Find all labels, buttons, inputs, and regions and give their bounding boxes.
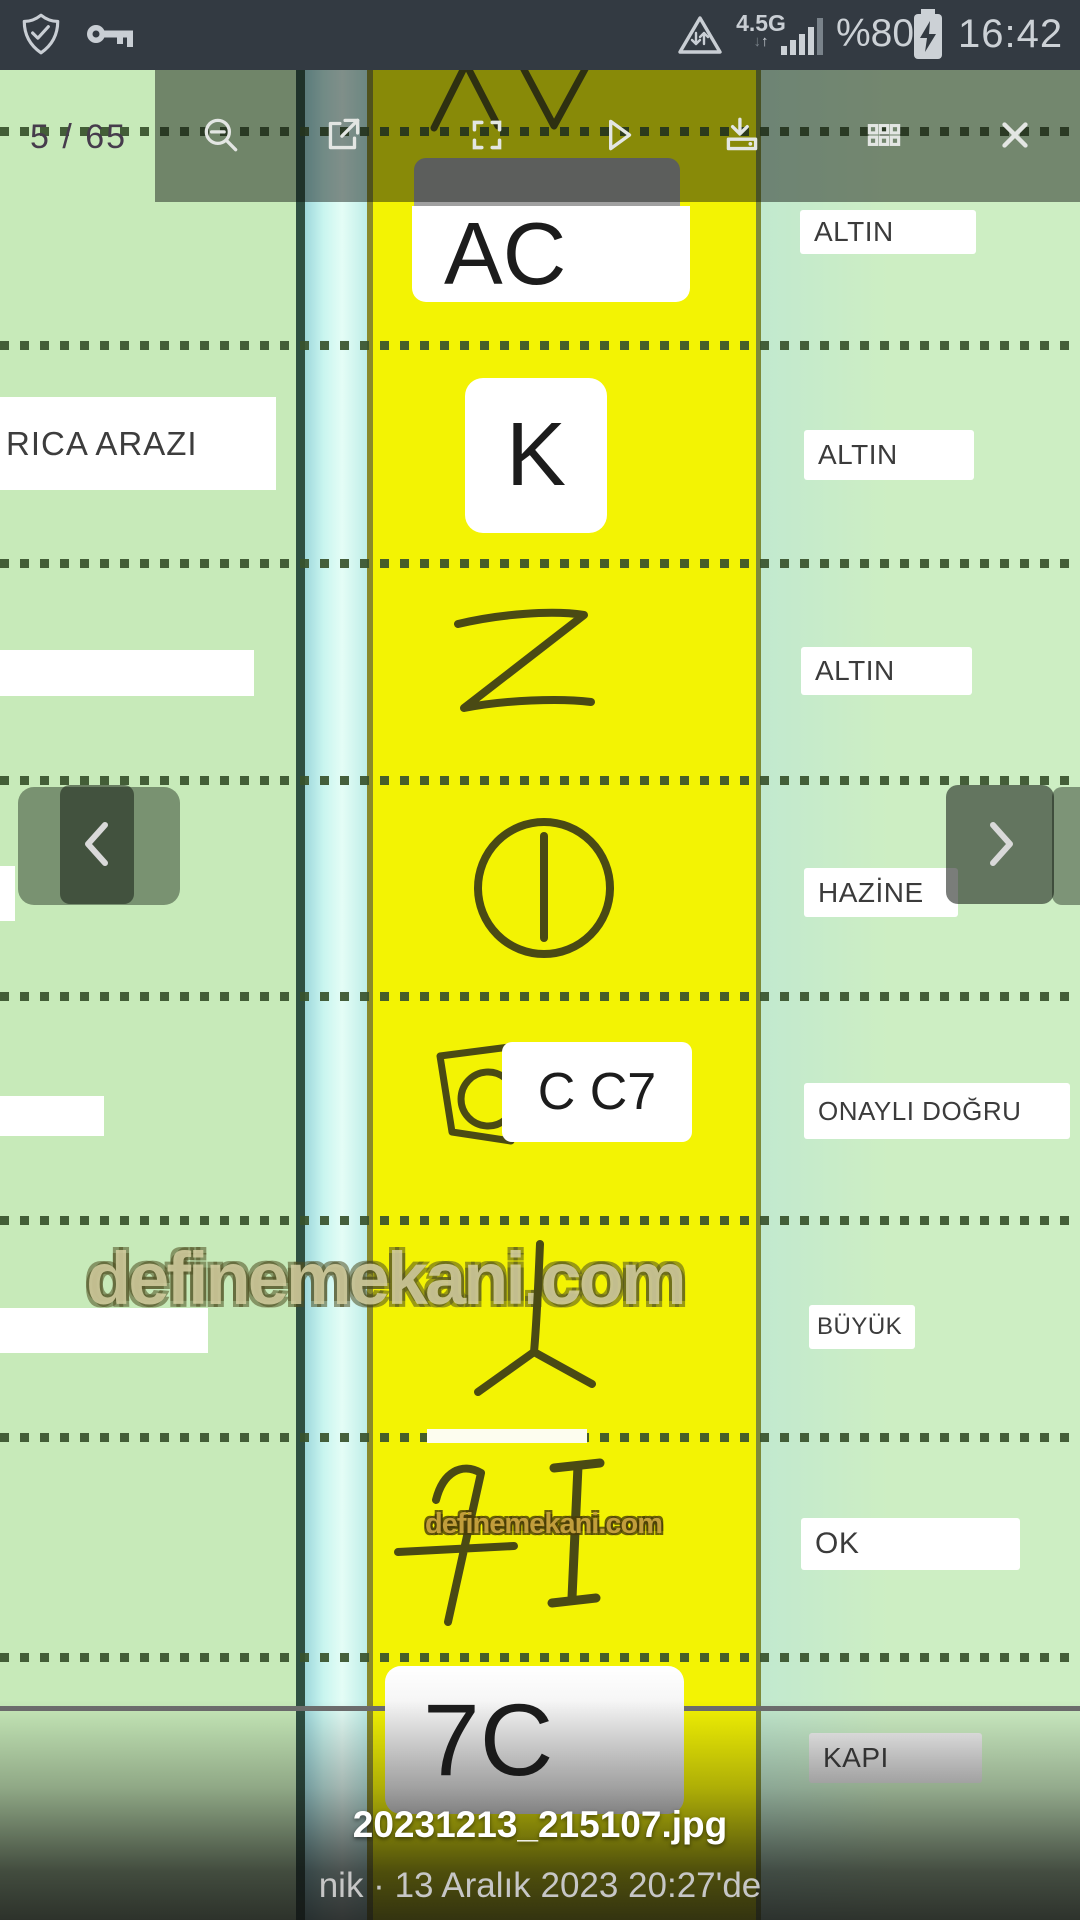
left-label-box: RICA ARAZI (0, 397, 276, 490)
play-button[interactable] (595, 112, 641, 158)
seven-and-i (398, 1469, 514, 1622)
close-button[interactable] (992, 112, 1038, 158)
next-image-button[interactable] (946, 785, 1054, 904)
symbol-box-cc7: C C7 (502, 1042, 692, 1142)
left-label-box-empty (0, 650, 254, 696)
fullscreen-icon (474, 122, 499, 147)
label-hazine: HAZİNE (804, 868, 958, 917)
forked-stake (478, 1244, 592, 1392)
clock: 16:42 (958, 12, 1063, 57)
label-altin-2: ALTIN (804, 430, 974, 480)
fullscreen-button[interactable] (464, 112, 510, 158)
label-ok: OK (801, 1518, 1020, 1570)
key-icon (84, 11, 138, 57)
byline-caption: nik · 13 Aralık 2023 20:27'de (0, 1866, 1080, 1906)
open-in-new-icon (330, 120, 357, 147)
chevron-left-icon (88, 825, 105, 863)
signal-strength-icon (781, 12, 827, 58)
symbol-box-k: K (465, 378, 607, 533)
zoom-out-icon (206, 120, 235, 149)
battery-percent: %80 (836, 12, 914, 56)
label-onayli-dogru: ONAYLI DOĞRU (804, 1083, 1070, 1139)
zoom-out-button[interactable] (198, 112, 244, 158)
label-text: ALTIN (818, 439, 898, 471)
photo-viewer-image[interactable]: definemekani.com AC K (0, 0, 1080, 1920)
left-label-text: RICA ARAZI (0, 425, 198, 463)
label-text: BÜYÜK (817, 1313, 902, 1341)
filename-caption: 20231213_215107.jpg (0, 1804, 1080, 1846)
left-label-box-empty (0, 1096, 104, 1136)
prev-image-button[interactable] (60, 785, 134, 904)
grid-view-button[interactable] (861, 112, 907, 158)
symbol-text: C C7 (538, 1062, 656, 1122)
battery-charging-icon (910, 8, 946, 62)
symbol-box-ac: AC (412, 206, 690, 302)
label-text: OK (815, 1527, 859, 1561)
chevron-right-icon (993, 825, 1010, 863)
grid-icon (869, 126, 898, 145)
next-button-halo (1052, 787, 1080, 905)
label-text: ONAYLI DOĞRU (818, 1096, 1021, 1127)
label-text: ALTIN (815, 655, 895, 687)
status-bar: 4.5G ↓↑ %80 16:42 (0, 0, 1080, 70)
label-altin-1: ALTIN (800, 210, 976, 254)
open-in-new-button[interactable] (320, 112, 366, 158)
data-saver-icon (676, 12, 724, 60)
label-buyuk: BÜYÜK (809, 1305, 915, 1349)
left-label-box-empty (0, 1308, 208, 1353)
download-button[interactable] (719, 112, 765, 158)
close-icon (1005, 125, 1026, 146)
shield-check-icon (18, 11, 64, 57)
phone-screen: definemekani.com AC K (0, 0, 1080, 1920)
watermark-small: definemekani.com (425, 1508, 662, 1541)
play-icon (611, 121, 630, 148)
left-label-box-sliver (0, 866, 15, 921)
symbol-text: K (506, 404, 566, 507)
label-text: ALTIN (814, 216, 894, 248)
z-sign (458, 613, 591, 708)
label-text: HAZİNE (818, 877, 924, 909)
page-indicator: 5 / 65 (30, 118, 127, 157)
symbol-text: AC (412, 203, 566, 305)
label-altin-3: ALTIN (801, 647, 972, 695)
